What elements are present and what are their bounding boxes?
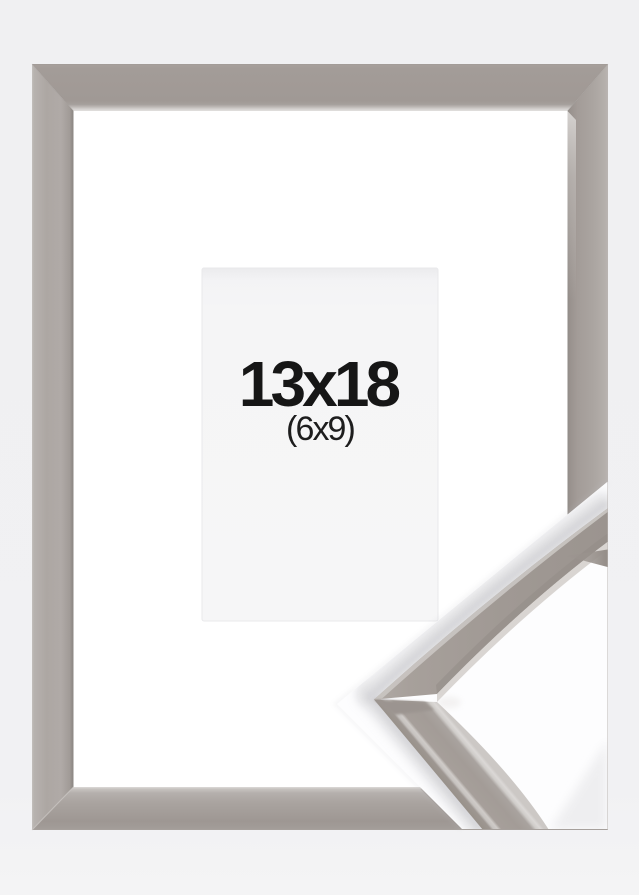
svg-text:(6x9): (6x9) (286, 410, 355, 448)
